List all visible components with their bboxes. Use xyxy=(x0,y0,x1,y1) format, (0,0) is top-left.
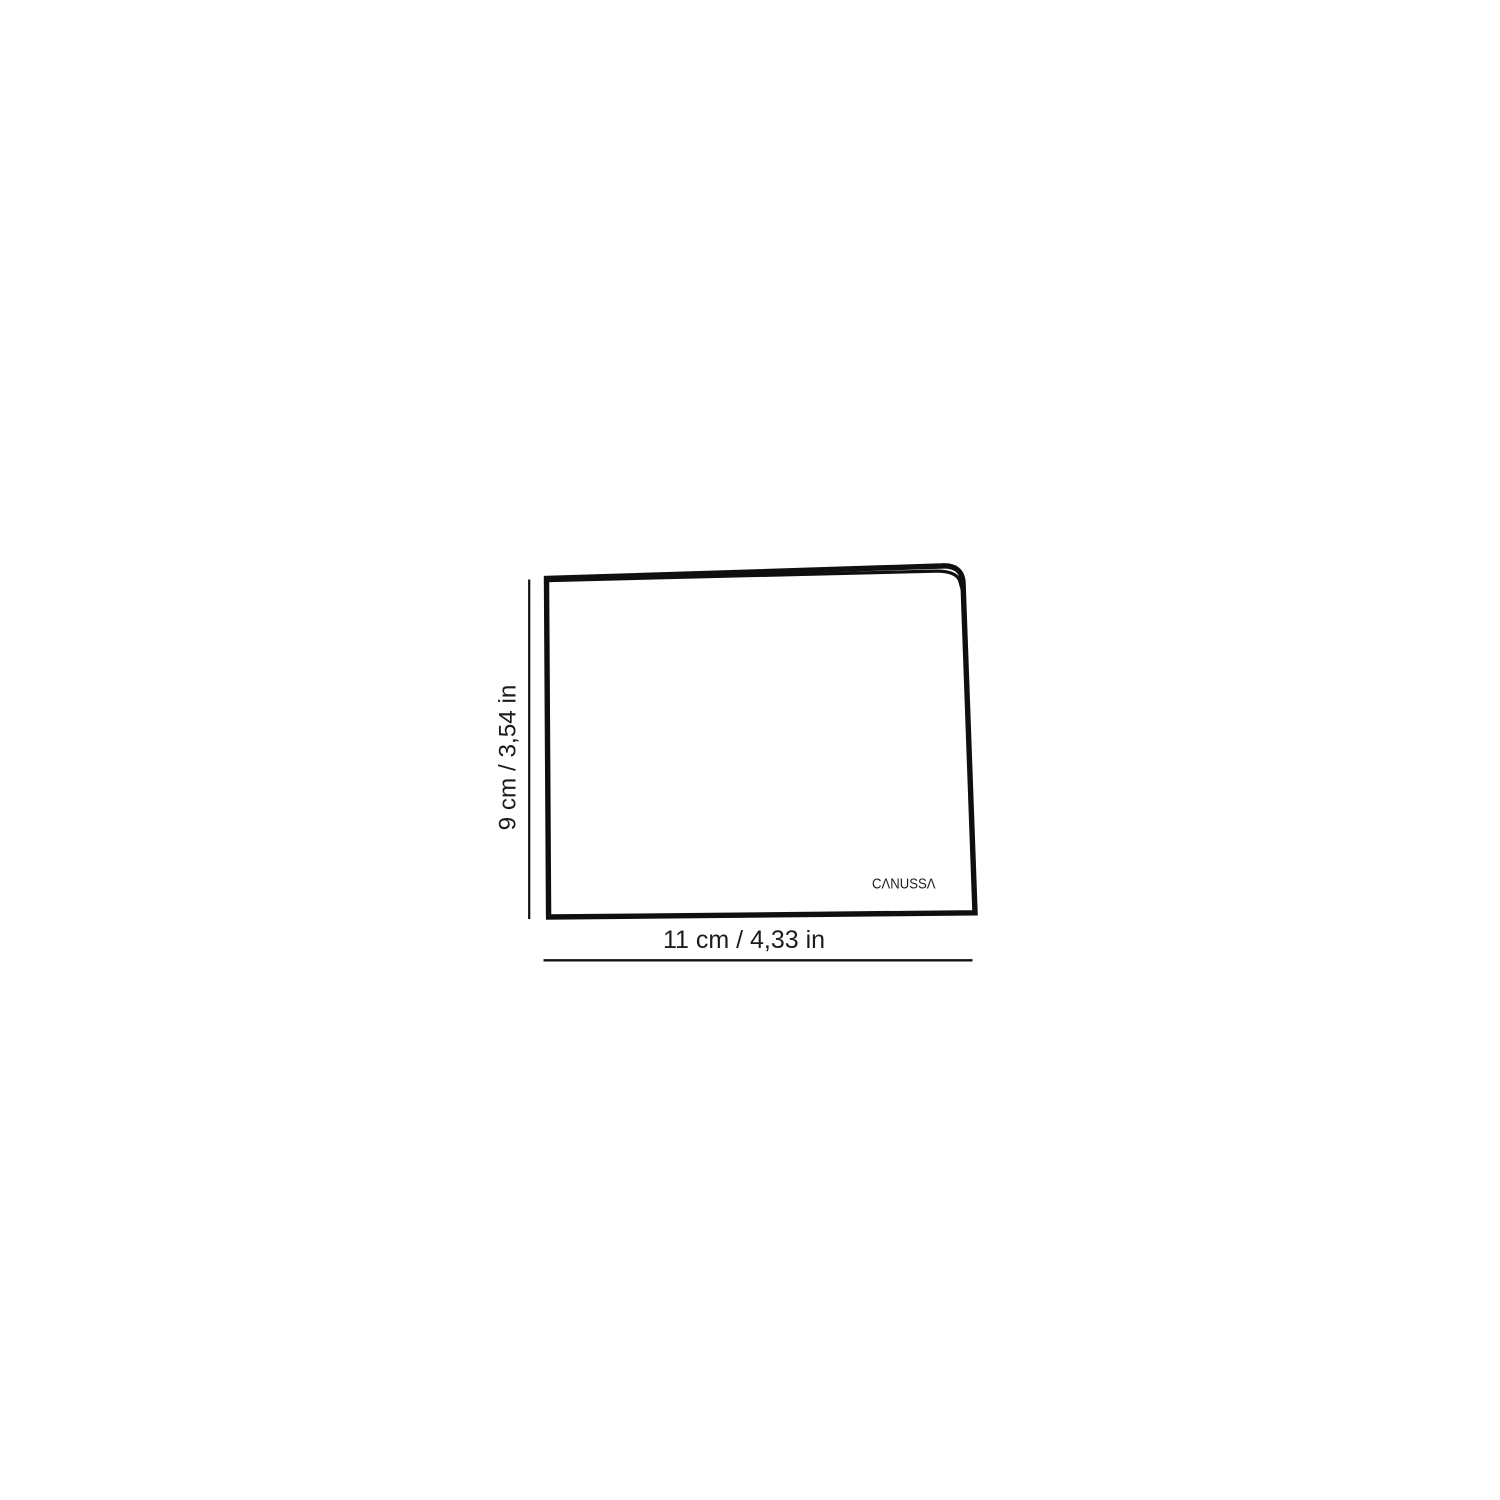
svg-text:9 cm / 3,54 in: 9 cm / 3,54 in xyxy=(495,685,522,831)
svg-text:11 cm / 4,33 in: 11 cm / 4,33 in xyxy=(663,926,825,954)
svg-text:CΛNUSSΛ: CΛNUSSΛ xyxy=(872,876,936,893)
